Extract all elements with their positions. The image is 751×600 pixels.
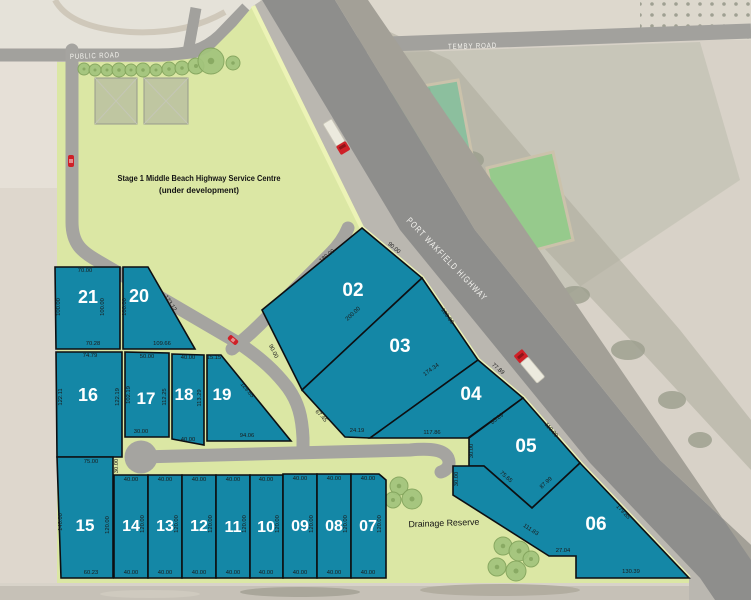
- lot-09-dimension: 40.00: [293, 570, 308, 576]
- tree-icon: [101, 64, 113, 76]
- lot-05-number: 05: [515, 436, 537, 457]
- lot-09-dimension: 40.00: [293, 476, 308, 482]
- temby-road-label: TEMBY ROAD: [448, 41, 497, 51]
- lot-13-dimension: 120.00: [174, 515, 180, 533]
- lot-07-dimension: 40.00: [361, 570, 376, 576]
- tree-icon: [385, 492, 401, 508]
- lot-12-dimension: 40.00: [192, 570, 207, 576]
- lot-21-dimension: 100.00: [56, 298, 62, 316]
- lot-12-dimension: 120.00: [208, 515, 214, 533]
- lot-19-number: 19: [213, 385, 232, 404]
- tree-icon: [162, 62, 176, 76]
- lot-11-number: 11: [225, 519, 242, 536]
- lot-21-dimension: 100.00: [100, 298, 106, 316]
- building-footprint: [144, 78, 188, 124]
- lot-08-dimension: 40.00: [327, 570, 342, 576]
- car-icon: [68, 155, 74, 167]
- lot-17-dimension: 102.19: [126, 386, 132, 404]
- lot-08-dimension: 120.00: [343, 515, 349, 533]
- lot-08-number: 08: [325, 518, 343, 535]
- lot-08-dimension: 40.00: [327, 476, 342, 482]
- lot-05-dimension: 30.00: [469, 444, 475, 459]
- lot-19-dimension: 94.06: [240, 433, 255, 439]
- lot-20-dimension: 100.00: [122, 298, 128, 316]
- tree-icon: [488, 558, 506, 576]
- lot-02-number: 02: [342, 280, 363, 301]
- lot-13-number: 13: [156, 518, 174, 535]
- lot-20-number: 20: [129, 286, 149, 306]
- lot-03-dimension: 24.19: [350, 428, 365, 434]
- lot-16-dimension: 74.79: [83, 353, 98, 359]
- lot-10-dimension: 40.00: [259, 477, 274, 483]
- tree-icon: [523, 551, 539, 567]
- service-centre-subtitle: (under development): [159, 186, 239, 195]
- lot-18-dimension: 40.00: [181, 437, 196, 443]
- lot-11-dimension: 120.00: [242, 515, 248, 533]
- tree-icon: [89, 64, 101, 76]
- lot-13-dimension: 40.00: [158, 570, 173, 576]
- lot-17-number: 17: [137, 389, 156, 408]
- lot-21-number: 21: [78, 287, 98, 307]
- lot-18-number: 18: [175, 385, 194, 404]
- subdivision-plan: 180.0090.00200.0090.00100.00174.3424.196…: [0, 0, 751, 600]
- lot-07-number: 07: [359, 518, 377, 535]
- lot-18-dimension: 113.29: [197, 389, 203, 406]
- lot-13-dimension: 40.00: [158, 477, 173, 483]
- lot-15-dimension: 30.00: [114, 459, 120, 474]
- lot-06-number: 06: [585, 514, 606, 535]
- lot-14-dimension: 40.00: [124, 570, 139, 576]
- lot-15-number: 15: [76, 516, 95, 535]
- lot-09-number: 09: [291, 518, 309, 535]
- lot-14-dimension: 40.00: [124, 477, 139, 483]
- lot-15-dimension: 75.00: [84, 459, 99, 465]
- lot-11-dimension: 40.00: [226, 477, 241, 483]
- lot-03-number: 03: [389, 336, 410, 357]
- lot-20-dimension: 109.66: [153, 341, 171, 347]
- building-footprint: [95, 78, 137, 124]
- tree-icon: [112, 63, 126, 77]
- lot-15-dimension: 120.00: [105, 516, 111, 534]
- lot-09-dimension: 120.00: [309, 515, 315, 533]
- lot-07-dimension: 120.00: [377, 515, 383, 533]
- lot-14-number: 14: [122, 518, 140, 535]
- tree-icon: [150, 64, 162, 76]
- lot-04-dimension: 117.86: [423, 430, 440, 436]
- lot-11-dimension: 40.00: [226, 570, 241, 576]
- lot-17-dimension: 30.00: [134, 429, 149, 435]
- lot-15-dimension: 140.00: [58, 513, 64, 531]
- lot-10-dimension: 40.00: [259, 570, 274, 576]
- lot-14-dimension: 120.00: [140, 515, 146, 533]
- lot-07-dimension: 40.00: [361, 476, 376, 482]
- lot-12-dimension: 40.00: [192, 477, 207, 483]
- lot-16-number: 16: [78, 385, 98, 405]
- public-road-label: PUBLIC ROAD: [70, 50, 120, 61]
- lot-06-dimension: 30.00: [454, 472, 460, 487]
- lot-19-dimension: 15.15: [207, 355, 222, 361]
- tree-icon: [402, 489, 422, 509]
- lot-18-dimension: 40.00: [181, 355, 196, 361]
- tree-icon: [125, 64, 137, 76]
- tree-icon: [506, 561, 526, 581]
- tree-icon: [136, 63, 150, 77]
- lot-06-dimension: 27.04: [556, 548, 571, 554]
- ground-patch: [240, 587, 360, 597]
- lot-15-dimension: 60.23: [84, 570, 99, 576]
- lot-21-dimension: 70.28: [86, 341, 101, 347]
- cul-de-sac: [125, 441, 158, 474]
- lot-21[interactable]: [55, 267, 120, 349]
- tree-icon: [198, 48, 224, 74]
- tree-icon: [78, 63, 90, 75]
- tree-icon: [175, 61, 189, 75]
- lot-16-dimension: 122.11: [58, 388, 64, 405]
- lot-10-dimension: 120.00: [275, 515, 281, 533]
- tree-icon: [226, 56, 240, 70]
- lot-17-dimension: 50.00: [140, 354, 155, 360]
- lot-16-dimension: 122.19: [115, 388, 121, 406]
- lot-21-dimension: 70.00: [78, 268, 93, 274]
- plan-canvas: 180.0090.00200.0090.00100.00174.3424.196…: [0, 0, 751, 600]
- lot-17-dimension: 112.25: [162, 388, 168, 405]
- lot-06-dimension: 130.39: [622, 569, 640, 575]
- service-centre-title: Stage 1 Middle Beach Highway Service Cen…: [118, 174, 281, 183]
- lot-04-number: 04: [460, 384, 482, 405]
- lot-10-number: 10: [257, 519, 275, 536]
- lot-12-number: 12: [190, 518, 208, 535]
